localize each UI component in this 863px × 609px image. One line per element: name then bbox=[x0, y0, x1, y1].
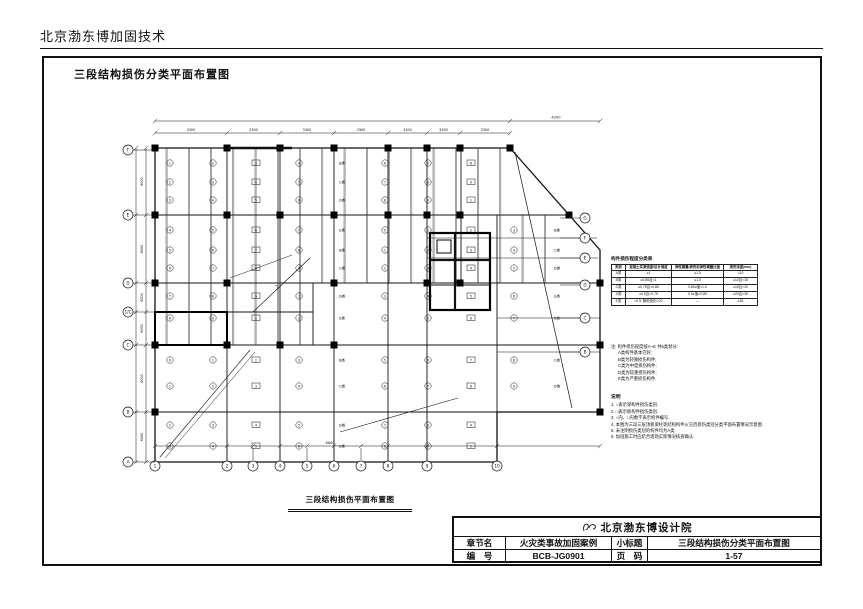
legend-title: 说明 bbox=[611, 394, 783, 401]
svg-text:5: 5 bbox=[470, 294, 472, 298]
table-cell: ≥35 bbox=[724, 299, 758, 306]
svg-text:B类: B类 bbox=[554, 228, 560, 233]
svg-text:3300: 3300 bbox=[303, 128, 312, 132]
table-cell: <10 bbox=[724, 271, 758, 278]
svg-text:C: C bbox=[127, 343, 130, 348]
subtitle-value: 三段结构损伤分类平面布置图 bbox=[648, 537, 820, 550]
table-cell: C类 bbox=[612, 285, 626, 292]
svg-text:E: E bbox=[584, 256, 587, 261]
table-cell: ≥0.75且<0.85 bbox=[626, 285, 672, 292]
damage-table-title: 构件损伤程度分类表 bbox=[611, 256, 761, 262]
number-label: 编 号 bbox=[454, 550, 506, 563]
damage-table: 类别混凝土实测强度/设计强度弹性模量/损伤前弹性模量比值损伤深度(mm) A类≥… bbox=[611, 264, 758, 306]
svg-text:↑: ↑ bbox=[274, 283, 280, 289]
svg-text:B类: B类 bbox=[339, 248, 345, 253]
svg-text:3: 3 bbox=[169, 444, 171, 448]
title-block-grid: 章节名 火灾类事故加固案例 小标题 三段结构损伤分类平面布置图 编 号 BCB-… bbox=[454, 537, 820, 562]
svg-text:8: 8 bbox=[212, 294, 214, 298]
subtitle-label: 小标题 bbox=[612, 537, 648, 550]
svg-text:4: 4 bbox=[279, 464, 282, 469]
svg-text:6: 6 bbox=[384, 384, 386, 388]
table-row: A类≥1≥1.0<10 bbox=[612, 271, 758, 278]
svg-text:2: 2 bbox=[298, 316, 300, 320]
note-line: E类为严重损伤构件. bbox=[611, 376, 781, 382]
svg-text:8: 8 bbox=[470, 384, 472, 388]
svg-text:5: 5 bbox=[298, 423, 300, 427]
damage-table-header-cell: 混凝土实测强度/设计强度 bbox=[626, 264, 672, 271]
table-row: B类≥0.85且<1≥1.0≥10且<15 bbox=[612, 278, 758, 285]
table-row: C类≥0.75且<0.850.80≤值<1.0≥15且<20 bbox=[612, 285, 758, 292]
svg-text:9: 9 bbox=[427, 444, 429, 448]
svg-text:6000: 6000 bbox=[140, 374, 144, 382]
svg-text:3: 3 bbox=[513, 228, 515, 232]
svg-text:3: 3 bbox=[212, 423, 214, 427]
svg-text:C类: C类 bbox=[339, 180, 346, 185]
legend-list: 1. ○表示梁构件损伤类别.2. □表示板构件损伤类别.3. ○内、□内数字表示… bbox=[611, 402, 783, 441]
column-squares bbox=[152, 145, 604, 416]
svg-text:9: 9 bbox=[470, 180, 472, 184]
table-cell: 0.80≤值<1.0 bbox=[672, 285, 724, 292]
svg-text:7: 7 bbox=[169, 294, 171, 298]
svg-text:6: 6 bbox=[470, 316, 472, 320]
table-cell: ≥0.85且<1 bbox=[626, 278, 672, 285]
svg-text:7: 7 bbox=[360, 464, 363, 469]
svg-text:9: 9 bbox=[384, 228, 386, 232]
svg-text:8: 8 bbox=[470, 161, 472, 165]
plan-caption: 三段结构损伤平面布置图 bbox=[288, 489, 412, 512]
svg-text:1: 1 bbox=[384, 248, 386, 252]
svg-text:D类: D类 bbox=[339, 198, 346, 203]
svg-text:E类: E类 bbox=[339, 444, 345, 449]
svg-text:C类: C类 bbox=[339, 266, 346, 271]
svg-text:3300: 3300 bbox=[249, 128, 258, 132]
svg-text:10: 10 bbox=[494, 464, 500, 469]
svg-text:D类: D类 bbox=[339, 423, 346, 428]
svg-text:2: 2 bbox=[169, 180, 171, 184]
svg-text:6000: 6000 bbox=[140, 433, 144, 441]
svg-text:4: 4 bbox=[212, 198, 214, 202]
table-cell: A类 bbox=[612, 271, 626, 278]
svg-text:8: 8 bbox=[427, 423, 429, 427]
svg-text:C类: C类 bbox=[554, 248, 561, 253]
svg-text:2: 2 bbox=[212, 384, 214, 388]
svg-text:2: 2 bbox=[212, 161, 214, 165]
svg-text:8: 8 bbox=[387, 464, 390, 469]
svg-text:9: 9 bbox=[169, 358, 171, 362]
chapter-label: 章节名 bbox=[454, 537, 506, 550]
svg-text:4: 4 bbox=[513, 248, 515, 252]
svg-text:1: 1 bbox=[470, 444, 472, 448]
svg-text:4: 4 bbox=[384, 316, 386, 320]
svg-text:9: 9 bbox=[470, 423, 472, 427]
table-cell: <0.5, 酥松炭化C20 bbox=[626, 299, 672, 306]
table-cell: ≥1.0 bbox=[672, 278, 724, 285]
svg-text:1/C: 1/C bbox=[125, 310, 132, 315]
svg-text:D类: D类 bbox=[339, 294, 346, 299]
building-outline bbox=[155, 148, 600, 462]
svg-text:C: C bbox=[584, 316, 587, 321]
svg-text:7: 7 bbox=[427, 384, 429, 388]
svg-text:7: 7 bbox=[384, 180, 386, 184]
svg-text:6: 6 bbox=[212, 248, 214, 252]
plan-caption-text: 三段结构损伤平面布置图 bbox=[305, 495, 394, 504]
svg-text:8: 8 bbox=[384, 198, 386, 202]
table-cell: E类 bbox=[612, 299, 626, 306]
table-cell: ≥15且<20 bbox=[724, 285, 758, 292]
svg-text:6000: 6000 bbox=[140, 324, 144, 332]
svg-text:B类: B类 bbox=[554, 316, 560, 321]
svg-text:3300: 3300 bbox=[357, 128, 366, 132]
svg-text:6: 6 bbox=[298, 198, 300, 202]
svg-text:4: 4 bbox=[298, 161, 300, 165]
svg-text:1: 1 bbox=[154, 464, 157, 469]
svg-text:B: B bbox=[127, 410, 130, 415]
company-name: 北京渤东博设计院 bbox=[601, 520, 693, 535]
svg-text:7: 7 bbox=[384, 423, 386, 427]
svg-text:6: 6 bbox=[427, 358, 429, 362]
svg-text:5: 5 bbox=[212, 228, 214, 232]
svg-text:5: 5 bbox=[169, 248, 171, 252]
svg-text:4: 4 bbox=[212, 444, 214, 448]
table-cell: B类 bbox=[612, 278, 626, 285]
svg-text:A: A bbox=[127, 460, 130, 465]
svg-text:1: 1 bbox=[470, 198, 472, 202]
legend-line: 4. 本图为三段三层顶板梁柱等结构构件火灾后损伤类别分类平面布置情况示意图. bbox=[611, 422, 783, 428]
svg-text:2: 2 bbox=[470, 228, 472, 232]
svg-text:5: 5 bbox=[384, 358, 386, 362]
table-cell: ≥1 bbox=[626, 271, 672, 278]
svg-text:E: E bbox=[127, 213, 130, 218]
svg-text:3: 3 bbox=[298, 358, 300, 362]
damage-tags: 1234B类6782345C类7893456D类8914567E类9123B类5… bbox=[167, 160, 561, 449]
svg-text:9: 9 bbox=[513, 384, 515, 388]
svg-text:B类: B类 bbox=[339, 358, 345, 363]
table-cell: 0.5≤值<0.85 bbox=[672, 292, 724, 299]
table-row: E类<0.5, 酥松炭化C20—≥35 bbox=[612, 299, 758, 306]
svg-text:6: 6 bbox=[513, 294, 515, 298]
table-cell: D类 bbox=[612, 292, 626, 299]
svg-text:7: 7 bbox=[470, 358, 472, 362]
svg-text:E类: E类 bbox=[339, 228, 345, 233]
svg-text:E类: E类 bbox=[339, 316, 345, 321]
svg-text:3300: 3300 bbox=[439, 128, 448, 132]
svg-text:5: 5 bbox=[513, 266, 515, 270]
svg-text:D: D bbox=[583, 283, 586, 288]
svg-text:D: D bbox=[126, 281, 129, 286]
svg-text:3300: 3300 bbox=[403, 128, 412, 132]
legend-block: 说明 1. ○表示梁构件损伤类别.2. □表示板构件损伤类别.3. ○内、□内数… bbox=[611, 394, 783, 441]
svg-text:9: 9 bbox=[255, 294, 257, 298]
svg-text:8: 8 bbox=[255, 266, 257, 270]
svg-text:8: 8 bbox=[298, 248, 300, 252]
svg-text:1: 1 bbox=[255, 316, 257, 320]
damage-table-wrap: 构件损伤程度分类表 类别混凝土实测强度/设计强度弹性模量/损伤前弹性模量比值损伤… bbox=[611, 256, 761, 306]
svg-text:6: 6 bbox=[333, 464, 336, 469]
number-value: BCB-JG0901 bbox=[506, 550, 612, 563]
table-cell: ≥1.0 bbox=[672, 271, 724, 278]
svg-text:8: 8 bbox=[427, 180, 429, 184]
svg-text:6: 6 bbox=[384, 161, 386, 165]
svg-text:C类: C类 bbox=[339, 384, 346, 389]
svg-text:9: 9 bbox=[298, 266, 300, 270]
svg-text:4: 4 bbox=[169, 228, 171, 232]
svg-text:6000: 6000 bbox=[140, 177, 144, 185]
notes-list: A类构件基本完好;B类为轻微损伤构件;C类为中度损伤构件;D类为较重损伤构件;E… bbox=[611, 350, 781, 382]
table-cell: ≥20且<35 bbox=[724, 292, 758, 299]
svg-text:E类: E类 bbox=[554, 294, 560, 299]
svg-text:6: 6 bbox=[255, 228, 257, 232]
svg-text:6000: 6000 bbox=[140, 293, 144, 301]
svg-text:4200: 4200 bbox=[551, 116, 561, 120]
company-logo-icon bbox=[582, 522, 597, 533]
svg-text:2: 2 bbox=[169, 423, 171, 427]
svg-text:3: 3 bbox=[384, 294, 386, 298]
svg-text:5: 5 bbox=[306, 464, 309, 469]
svg-text:1: 1 bbox=[212, 358, 214, 362]
damage-table-header-cell: 损伤深度(mm) bbox=[724, 264, 758, 271]
table-cell: ≥10且<15 bbox=[724, 278, 758, 285]
svg-text:3300: 3300 bbox=[481, 128, 490, 132]
table-cell: — bbox=[672, 299, 724, 306]
svg-text:5: 5 bbox=[298, 180, 300, 184]
svg-text:8: 8 bbox=[384, 444, 386, 448]
svg-text:3300: 3300 bbox=[187, 128, 196, 132]
svg-text:6: 6 bbox=[169, 266, 171, 270]
svg-text:3: 3 bbox=[470, 248, 472, 252]
svg-text:3: 3 bbox=[169, 198, 171, 202]
svg-text:7: 7 bbox=[513, 316, 515, 320]
title-block-company-row: 北京渤东博设计院 bbox=[454, 518, 820, 537]
damage-table-header-cell: 弹性模量/损伤前弹性模量比值 bbox=[672, 264, 724, 271]
svg-text:7: 7 bbox=[255, 248, 257, 252]
page: { "page": { "header": "北京渤东博加固技术", "draw… bbox=[0, 0, 863, 609]
svg-text:6000: 6000 bbox=[140, 245, 144, 253]
svg-text:B类: B类 bbox=[339, 161, 345, 166]
bold-walls bbox=[155, 148, 490, 345]
svg-text:1: 1 bbox=[169, 384, 171, 388]
svg-text:2: 2 bbox=[384, 266, 386, 270]
svg-text:2: 2 bbox=[255, 358, 257, 362]
svg-text:8: 8 bbox=[513, 358, 515, 362]
joist-lines bbox=[166, 148, 545, 345]
table-cell: ≥0.5且<0.75 bbox=[626, 292, 672, 299]
caption-underline-2 bbox=[288, 511, 412, 512]
svg-text:5: 5 bbox=[427, 316, 429, 320]
svg-text:B: B bbox=[584, 350, 587, 355]
notes-block: 注: 构件损伤程度按A~E 共5类划分: A类构件基本完好;B类为轻微损伤构件;… bbox=[611, 344, 781, 383]
svg-text:D类: D类 bbox=[554, 384, 561, 389]
svg-text:4: 4 bbox=[427, 294, 429, 298]
svg-text:3: 3 bbox=[427, 266, 429, 270]
svg-text:5: 5 bbox=[255, 444, 257, 448]
svg-text:9: 9 bbox=[212, 316, 214, 320]
svg-text:7: 7 bbox=[298, 228, 300, 232]
svg-text:9: 9 bbox=[426, 464, 429, 469]
caption-underline-1 bbox=[288, 509, 412, 510]
svg-text:4: 4 bbox=[255, 423, 257, 427]
svg-text:1: 1 bbox=[427, 228, 429, 232]
axis-grid bbox=[155, 148, 600, 462]
pageno-value: 1-57 bbox=[648, 550, 820, 563]
legend-line: 6. 加固施工时应结合现场实际情况核查确认. bbox=[611, 434, 783, 440]
svg-text:3: 3 bbox=[212, 180, 214, 184]
svg-text:6: 6 bbox=[298, 444, 300, 448]
svg-text:5: 5 bbox=[255, 198, 257, 202]
title-block: 北京渤东博设计院 章节名 火灾类事故加固案例 小标题 三段结构损伤分类平面布置图… bbox=[452, 516, 822, 563]
svg-text:3: 3 bbox=[255, 161, 257, 165]
svg-text:8: 8 bbox=[169, 316, 171, 320]
svg-text:C类: C类 bbox=[554, 358, 561, 363]
svg-text:7: 7 bbox=[427, 161, 429, 165]
svg-text:3: 3 bbox=[255, 384, 257, 388]
chapter-value: 火灾类事故加固案例 bbox=[506, 537, 612, 550]
svg-text:G: G bbox=[583, 216, 586, 221]
damage-table-header-cell: 类别 bbox=[612, 264, 626, 271]
svg-text:1: 1 bbox=[169, 161, 171, 165]
svg-text:2: 2 bbox=[427, 248, 429, 252]
svg-text:3: 3 bbox=[252, 464, 255, 469]
svg-text:7: 7 bbox=[212, 266, 214, 270]
svg-text:1: 1 bbox=[298, 294, 300, 298]
table-row: D类≥0.5且<0.750.5≤值<0.85≥20且<35 bbox=[612, 292, 758, 299]
axis-bubbles: 12345678910FED1/CCBAGFEDCB bbox=[123, 145, 590, 471]
svg-text:4: 4 bbox=[298, 384, 300, 388]
svg-text:6600: 6600 bbox=[326, 441, 335, 445]
svg-text:4: 4 bbox=[255, 180, 257, 184]
svg-text:2: 2 bbox=[226, 464, 229, 469]
damage-table-header-row: 类别混凝土实测强度/设计强度弹性模量/损伤前弹性模量比值损伤深度(mm) bbox=[612, 264, 758, 271]
svg-text:9: 9 bbox=[427, 198, 429, 202]
svg-text:D类: D类 bbox=[554, 266, 561, 271]
pageno-label: 页 码 bbox=[612, 550, 648, 563]
svg-text:4: 4 bbox=[470, 266, 472, 270]
